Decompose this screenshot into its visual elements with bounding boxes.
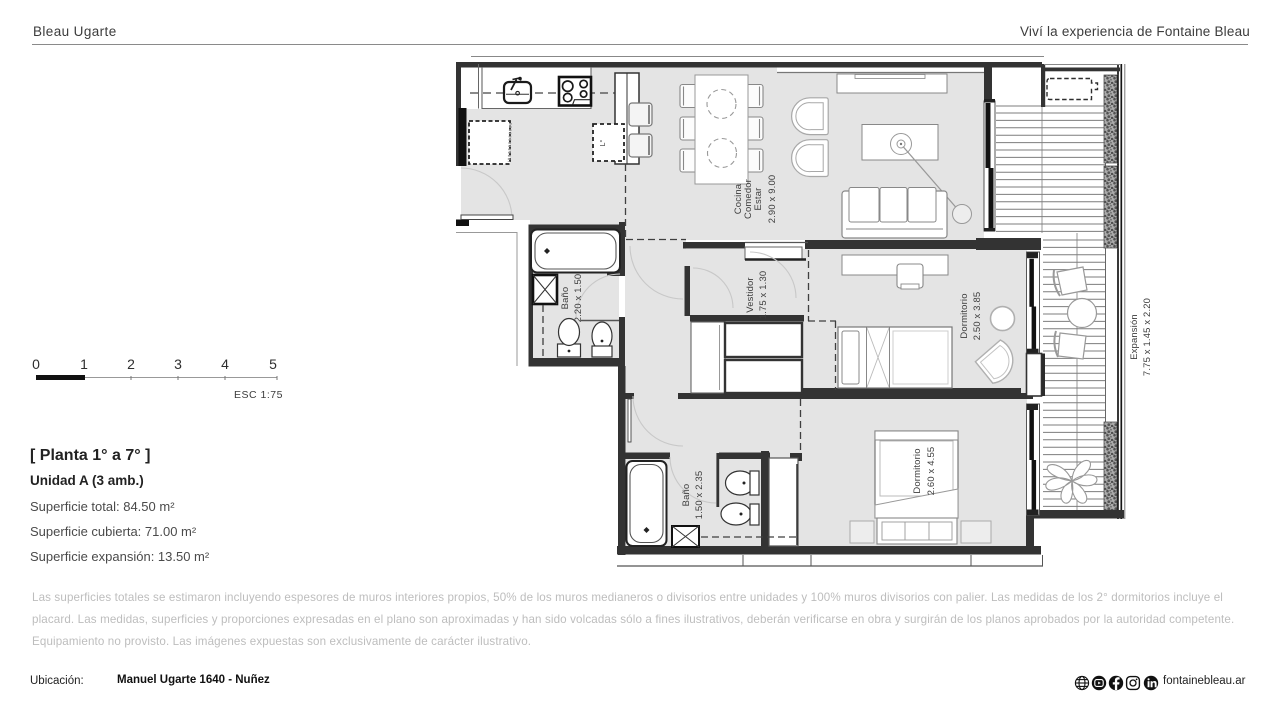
svg-text:L°: L° bbox=[599, 139, 607, 146]
svg-text:2.50 x 3.85: 2.50 x 3.85 bbox=[971, 292, 982, 341]
svg-text:2.20 x 1.50: 2.20 x 1.50 bbox=[572, 274, 583, 323]
svg-text:7.75 x 1.45 x 2.20: 7.75 x 1.45 x 2.20 bbox=[1141, 298, 1152, 376]
svg-text:Expansión: Expansión bbox=[1128, 314, 1139, 360]
svg-text:ESC 1:75: ESC 1:75 bbox=[234, 389, 283, 401]
svg-text:Dormitorio: Dormitorio bbox=[958, 293, 969, 338]
svg-text:1: 1 bbox=[80, 356, 88, 372]
svg-text:Estar: Estar bbox=[752, 188, 763, 211]
svg-text:3: 3 bbox=[174, 356, 182, 372]
svg-text:1.75 x 1.30: 1.75 x 1.30 bbox=[757, 271, 768, 320]
svg-text:5: 5 bbox=[269, 356, 277, 372]
svg-text:Baño: Baño bbox=[559, 287, 570, 310]
svg-text:2: 2 bbox=[127, 356, 135, 372]
svg-text:4: 4 bbox=[221, 356, 229, 372]
svg-text:Dormitorio: Dormitorio bbox=[911, 448, 922, 493]
svg-text:Baño: Baño bbox=[680, 484, 691, 507]
svg-text:Vestidor: Vestidor bbox=[744, 277, 755, 312]
svg-text:2.60 x 4.55: 2.60 x 4.55 bbox=[925, 447, 936, 496]
svg-text:1.50 x 2.35: 1.50 x 2.35 bbox=[693, 471, 704, 520]
svg-text:0: 0 bbox=[32, 356, 40, 372]
svg-text:2.90 x 9.00: 2.90 x 9.00 bbox=[766, 175, 777, 224]
